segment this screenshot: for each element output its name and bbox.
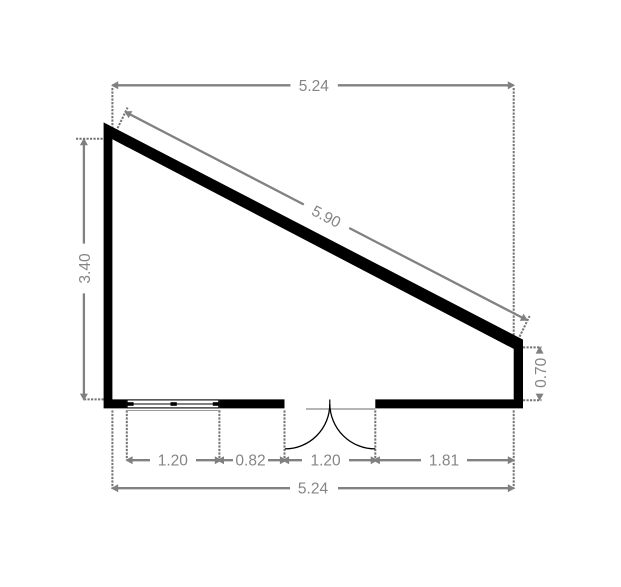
- svg-text:0.82: 0.82: [235, 453, 265, 470]
- svg-text:0.70: 0.70: [533, 357, 550, 388]
- svg-text:1.20: 1.20: [311, 453, 342, 470]
- svg-text:3.40: 3.40: [77, 253, 94, 284]
- svg-text:1.81: 1.81: [429, 453, 459, 470]
- svg-text:5.24: 5.24: [299, 78, 330, 95]
- svg-text:1.20: 1.20: [158, 453, 189, 470]
- svg-text:5.24: 5.24: [298, 481, 329, 498]
